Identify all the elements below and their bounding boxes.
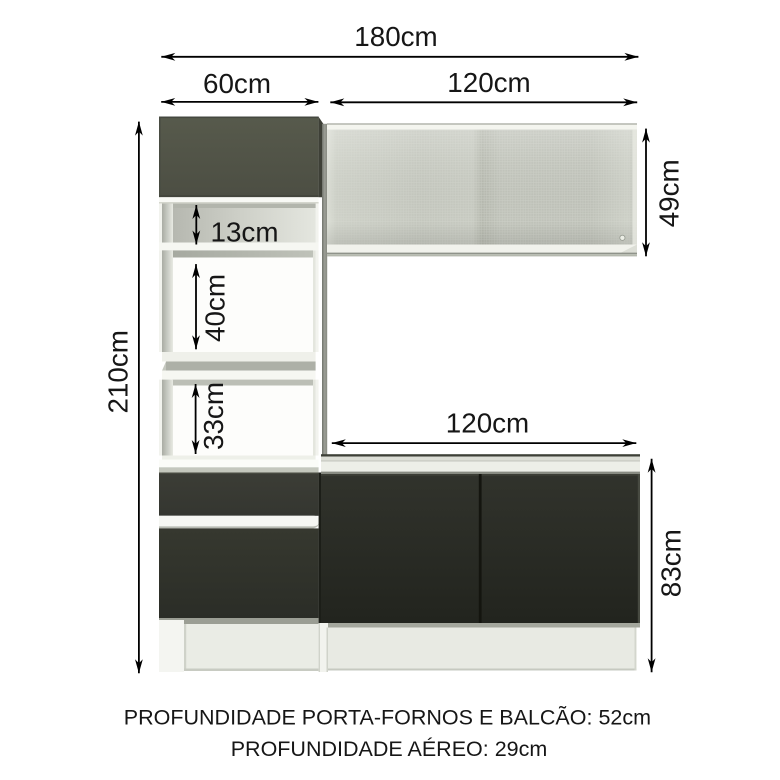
svg-text:49cm: 49cm [653,159,684,227]
svg-text:120cm: 120cm [446,408,529,439]
svg-text:180cm: 180cm [354,21,437,52]
svg-text:33cm: 33cm [198,382,229,450]
svg-text:PROFUNDIDADE PORTA-FORNOS E BA: PROFUNDIDADE PORTA-FORNOS E BALCÃO: 52cm [124,705,651,730]
svg-text:40cm: 40cm [200,274,231,342]
svg-text:210cm: 210cm [102,330,133,413]
svg-text:83cm: 83cm [656,529,687,597]
svg-text:120cm: 120cm [447,67,530,98]
svg-text:PROFUNDIDADE AÉREO: 29cm: PROFUNDIDADE AÉREO: 29cm [231,736,548,761]
svg-text:60cm: 60cm [203,68,271,99]
svg-text:13cm: 13cm [211,217,279,248]
